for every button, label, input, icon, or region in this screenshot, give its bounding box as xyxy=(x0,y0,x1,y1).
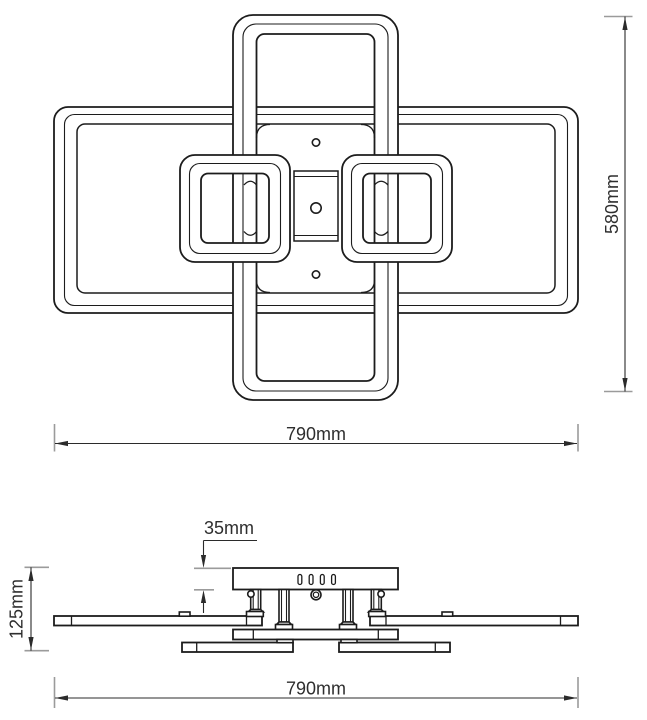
screw-hole-top xyxy=(312,139,319,146)
side-bar-right xyxy=(370,612,578,626)
lamp-dimension-drawing: 580mm 790mm xyxy=(0,0,647,720)
arrowhead-down xyxy=(28,637,33,650)
dim-label-width-top: 790mm xyxy=(286,424,346,444)
post-foot-right xyxy=(369,612,386,617)
screw-right xyxy=(378,591,384,597)
arrowhead-down xyxy=(622,378,627,391)
screw-left xyxy=(248,591,254,597)
bottom-bar-left xyxy=(182,643,293,653)
side-view: 35mm 125mm 790mm xyxy=(7,518,579,708)
dim-label-width-bottom: 790mm xyxy=(286,679,346,699)
arrowhead-left xyxy=(55,695,68,700)
center-grommet xyxy=(311,590,321,600)
connector-left xyxy=(277,640,293,643)
dim-width-790-top: 790mm xyxy=(55,424,579,452)
arrowhead-right xyxy=(564,441,577,446)
arrowhead-up xyxy=(28,568,33,581)
top-view: 580mm 790mm xyxy=(54,15,633,452)
side-bar-left xyxy=(54,612,262,626)
dim-height-580: 580mm xyxy=(602,17,633,392)
technical-drawing-page: 580mm 790mm xyxy=(0,0,647,720)
clip-tab xyxy=(179,612,190,616)
dim-label-canopy: 35mm xyxy=(204,518,254,538)
arrowhead-right xyxy=(564,695,577,700)
dim-label-height: 580mm xyxy=(602,174,622,234)
arrowhead-left xyxy=(55,441,68,446)
bottom-bar-right xyxy=(339,643,450,653)
clip-tab xyxy=(442,612,453,616)
arrowhead-up xyxy=(622,17,627,30)
dim-canopy-35: 35mm xyxy=(194,518,257,613)
dim-width-790-bottom: 790mm xyxy=(55,677,579,708)
arrowhead-up xyxy=(201,590,206,603)
connector-right xyxy=(341,640,357,643)
arrowhead-down xyxy=(201,555,206,568)
middle-bar xyxy=(233,630,398,640)
center-hole xyxy=(311,203,321,213)
ceiling-canopy xyxy=(233,568,398,590)
dim-label-thickness: 125mm xyxy=(7,579,27,639)
screw-hole-bottom xyxy=(312,271,319,278)
post-foot-left xyxy=(247,612,264,617)
dim-thickness-125: 125mm xyxy=(7,567,50,650)
